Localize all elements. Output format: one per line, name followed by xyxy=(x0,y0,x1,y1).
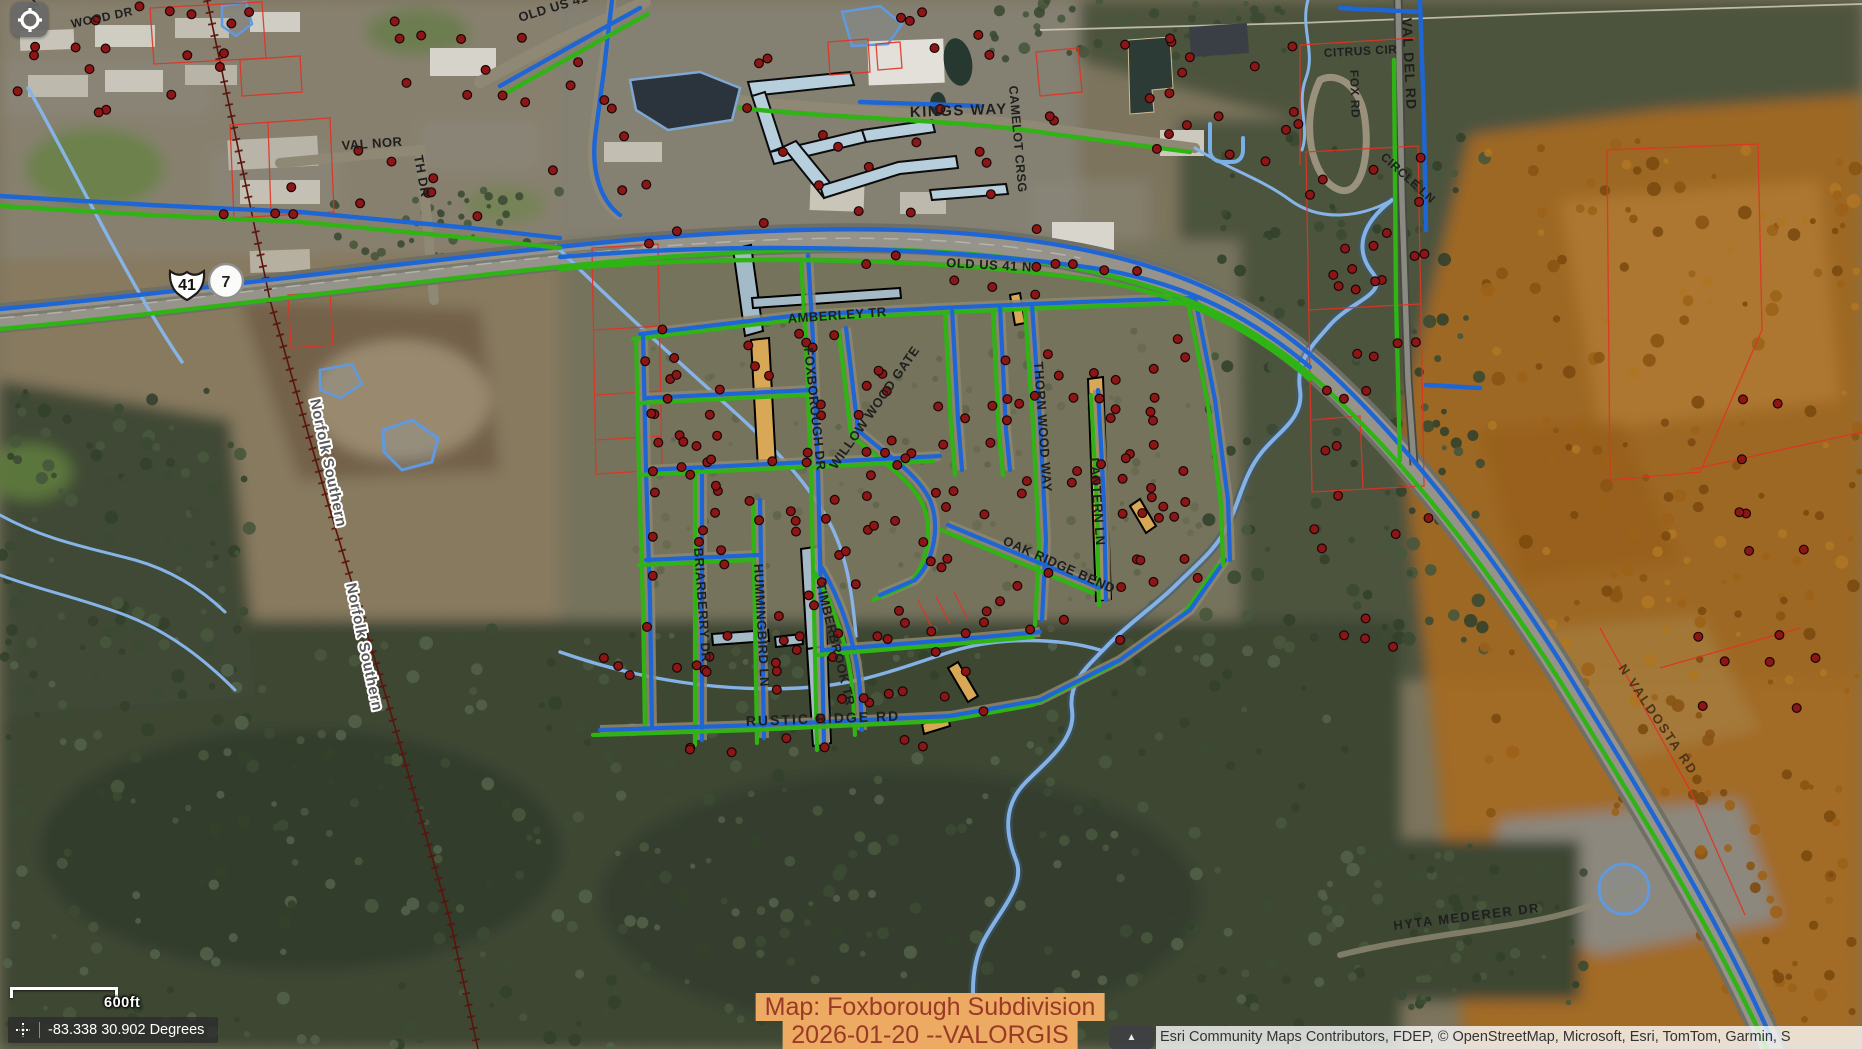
address-point-dot xyxy=(356,199,365,208)
attribution-toggle-button[interactable]: ▲ xyxy=(1109,1026,1154,1049)
address-point-dot xyxy=(859,694,868,703)
aerial-map[interactable]: KWWOOD DROLD US 41 NVAL NORTH DRKINGS WA… xyxy=(0,0,1862,1049)
address-point-dot xyxy=(135,2,144,11)
address-point-dot xyxy=(1116,636,1125,645)
address-point-dot xyxy=(686,470,695,479)
address-point-dot xyxy=(187,10,196,19)
address-point-dot xyxy=(1138,509,1147,518)
address-point-dot xyxy=(1146,407,1155,416)
address-point-dot xyxy=(94,108,103,117)
address-point-dot xyxy=(1100,266,1109,275)
address-point-dot xyxy=(919,742,928,751)
address-point-dot xyxy=(1069,260,1078,269)
address-point-dot xyxy=(654,438,663,447)
address-point-dot xyxy=(549,166,558,175)
address-point-dot xyxy=(614,662,623,671)
address-point-dot xyxy=(663,394,672,403)
address-point-dot xyxy=(768,457,777,466)
address-point-dot xyxy=(1118,474,1127,483)
address-point-dot xyxy=(521,98,530,107)
address-point-dot xyxy=(1694,632,1703,641)
address-point-dot xyxy=(607,104,616,113)
address-point-dot xyxy=(30,51,39,60)
address-point-dot xyxy=(1353,349,1362,358)
address-point-dot xyxy=(1044,350,1053,359)
address-point-dot xyxy=(245,8,254,17)
address-point-dot xyxy=(1159,502,1168,511)
address-point-dot xyxy=(1393,339,1402,348)
address-point-dot xyxy=(85,65,94,74)
address-point-dot xyxy=(1179,467,1188,476)
address-point-dot xyxy=(31,42,40,51)
address-point-dot xyxy=(891,517,900,526)
address-point-dot xyxy=(289,210,298,219)
address-point-dot xyxy=(1150,393,1159,402)
address-point-dot xyxy=(1775,631,1784,640)
address-point-dot xyxy=(71,43,80,52)
address-point-dot xyxy=(651,488,660,497)
address-point-dot xyxy=(1369,165,1378,174)
address-point-dot xyxy=(795,329,804,338)
address-point-dot xyxy=(982,158,991,167)
address-point-dot xyxy=(782,734,791,743)
scale-bar xyxy=(10,987,118,998)
address-point-dot xyxy=(1111,376,1120,385)
address-point-dot xyxy=(720,560,729,569)
address-point-dot xyxy=(1013,582,1022,591)
address-point-dot xyxy=(679,437,688,446)
address-point-dot xyxy=(518,33,527,42)
address-point-dot xyxy=(219,210,228,219)
address-point-dot xyxy=(1095,394,1104,403)
address-point-dot xyxy=(862,448,871,457)
address-point-dot xyxy=(702,668,711,677)
address-point-dot xyxy=(1069,393,1078,402)
address-point-dot xyxy=(1073,467,1082,476)
address-point-dot xyxy=(1323,386,1332,395)
address-point-dot xyxy=(1410,252,1419,261)
address-point-dot xyxy=(387,157,396,166)
address-point-dot xyxy=(1111,405,1120,414)
address-point-dot xyxy=(574,58,583,67)
address-point-dot xyxy=(1306,190,1315,199)
address-point-dot xyxy=(641,357,650,366)
address-point-dot xyxy=(649,467,658,476)
address-point-dot xyxy=(1318,544,1327,553)
address-point-dot xyxy=(918,8,927,17)
address-point-dot xyxy=(1067,478,1076,487)
address-point-dot xyxy=(906,208,915,217)
address-point-dot xyxy=(791,517,800,526)
address-point-dot xyxy=(930,44,939,53)
address-point-dot xyxy=(620,132,629,141)
collapse-arrow-icon: ▲ xyxy=(1127,1032,1137,1043)
address-point-dot xyxy=(1003,416,1012,425)
address-point-dot xyxy=(658,325,667,334)
address-point-dot xyxy=(940,692,949,701)
address-point-dot xyxy=(1329,271,1338,280)
address-point-dot xyxy=(772,685,781,694)
map-canvas[interactable]: KWWOOD DROLD US 41 NVAL NORTH DRKINGS WA… xyxy=(0,0,1862,1049)
address-point-dot xyxy=(699,526,708,535)
address-point-dot xyxy=(870,521,879,530)
address-point-dot xyxy=(905,17,914,26)
address-point-dot xyxy=(402,79,411,88)
address-point-dot xyxy=(919,538,928,547)
address-point-dot xyxy=(1340,394,1349,403)
address-point-dot xyxy=(390,17,399,26)
address-point-dot xyxy=(165,7,174,16)
address-point-dot xyxy=(1310,525,1319,534)
attribution-text: Esri Community Maps Contributors, FDEP, … xyxy=(1160,1029,1791,1045)
address-point-dot xyxy=(961,414,970,423)
address-point-dot xyxy=(1348,265,1357,274)
address-point-dot xyxy=(1181,353,1190,362)
address-point-dot xyxy=(898,687,907,696)
address-point-dot xyxy=(677,463,686,472)
address-point-dot xyxy=(950,276,959,285)
address-point-dot xyxy=(1334,491,1343,500)
map-street-label: FOX RD xyxy=(1347,70,1363,119)
address-point-dot xyxy=(1773,399,1782,408)
address-point-dot xyxy=(618,186,627,195)
address-point-dot xyxy=(1391,530,1400,539)
address-point-dot xyxy=(1149,364,1158,373)
address-point-dot xyxy=(1361,614,1370,623)
address-point-dot xyxy=(795,632,804,641)
address-point-dot xyxy=(1811,654,1820,663)
address-point-dot xyxy=(901,619,910,628)
address-point-dot xyxy=(937,563,946,572)
address-point-dot xyxy=(763,54,772,63)
address-point-dot xyxy=(1371,277,1380,286)
map-stamp-date: 2026-01-20 --VALORGIS xyxy=(782,1021,1077,1049)
address-point-dot xyxy=(887,436,896,445)
address-point-dot xyxy=(985,51,994,60)
address-point-dot xyxy=(830,331,839,340)
address-point-dot xyxy=(1738,455,1747,464)
address-point-dot xyxy=(786,507,795,516)
address-point-dot xyxy=(1178,68,1187,77)
address-point-dot xyxy=(1032,225,1041,234)
address-point-dot xyxy=(912,138,921,147)
address-point-dot xyxy=(1017,489,1026,498)
gis-app-window: KWWOOD DROLD US 41 NVAL NORTH DRKINGS WA… xyxy=(0,0,1862,1049)
address-point-dot xyxy=(1282,125,1291,134)
address-point-dot xyxy=(183,51,192,60)
address-point-dot xyxy=(1181,498,1190,507)
address-point-dot xyxy=(961,629,970,638)
address-point-dot xyxy=(779,148,788,157)
crosshair-icon xyxy=(15,1022,31,1038)
address-point-dot xyxy=(1090,369,1099,378)
address-point-dot xyxy=(600,96,609,105)
address-point-dot xyxy=(942,503,951,512)
address-point-dot xyxy=(772,658,781,667)
route7-shield-number: 7 xyxy=(222,274,231,291)
address-point-dot xyxy=(819,131,828,140)
address-point-dot xyxy=(1389,642,1398,651)
address-point-dot xyxy=(931,648,940,657)
address-point-dot xyxy=(1045,112,1054,121)
address-point-dot xyxy=(1745,547,1754,556)
address-point-dot xyxy=(927,627,936,636)
attribution-bar: Esri Community Maps Contributors, FDEP, … xyxy=(1156,1026,1862,1049)
address-point-dot xyxy=(1186,53,1195,62)
address-point-dot xyxy=(1118,509,1127,518)
address-point-dot xyxy=(715,385,724,394)
address-point-dot xyxy=(1340,631,1349,640)
address-point-dot xyxy=(1799,545,1808,554)
coords-separator xyxy=(39,1022,40,1038)
address-point-dot xyxy=(1225,150,1234,159)
scale-bar-label: 600ft xyxy=(104,995,140,1011)
address-point-dot xyxy=(1165,130,1174,139)
address-point-dot xyxy=(1147,493,1156,502)
locate-button[interactable] xyxy=(11,2,48,37)
address-point-dot xyxy=(1003,395,1012,404)
address-point-dot xyxy=(1288,42,1297,51)
address-point-dot xyxy=(867,471,876,480)
address-point-dot xyxy=(864,163,873,172)
address-point-dot xyxy=(779,636,788,645)
address-point-dot xyxy=(672,371,681,380)
address-point-dot xyxy=(820,743,829,752)
address-point-dot xyxy=(822,514,831,523)
address-point-dot xyxy=(692,442,701,451)
address-point-dot xyxy=(900,736,909,745)
address-point-dot xyxy=(755,516,764,525)
address-point-dot xyxy=(1044,569,1053,578)
address-point-dot xyxy=(1180,555,1189,564)
address-point-dot xyxy=(1173,335,1182,344)
address-point-dot xyxy=(775,612,784,621)
address-point-dot xyxy=(815,181,824,190)
address-point-dot xyxy=(670,354,679,363)
address-point-dot xyxy=(648,532,657,541)
address-point-dot xyxy=(982,607,991,616)
address-point-dot xyxy=(1351,285,1360,294)
address-point-dot xyxy=(717,546,726,555)
address-point-dot xyxy=(1149,578,1158,587)
address-point-dot xyxy=(1792,704,1801,713)
address-point-dot xyxy=(988,283,997,292)
coords-text: -83.338 30.902 Degrees xyxy=(48,1022,204,1038)
address-point-dot xyxy=(893,461,902,470)
address-point-dot xyxy=(457,35,466,44)
address-point-dot xyxy=(901,454,910,463)
address-point-dot xyxy=(1261,157,1270,166)
address-point-dot xyxy=(1149,416,1158,425)
address-point-dot xyxy=(830,495,839,504)
address-point-dot xyxy=(1051,260,1060,269)
address-point-dot xyxy=(1765,658,1774,667)
address-point-dot xyxy=(980,618,989,627)
address-point-dot xyxy=(943,554,952,563)
address-point-dot xyxy=(1250,62,1259,71)
address-point-dot xyxy=(1321,446,1330,455)
address-point-dot xyxy=(863,492,872,501)
address-point-dot xyxy=(759,219,768,228)
address-point-dot xyxy=(1735,508,1744,517)
address-point-dot xyxy=(744,341,753,350)
address-point-dot xyxy=(792,646,801,655)
address-point-dot xyxy=(1032,263,1041,272)
address-point-dot xyxy=(723,632,732,641)
address-point-dot xyxy=(897,13,906,22)
address-point-dot xyxy=(1023,477,1032,486)
address-point-dot xyxy=(712,481,721,490)
us41-shield-number: 41 xyxy=(178,277,196,294)
address-point-dot xyxy=(772,667,781,676)
address-point-dot xyxy=(873,632,882,641)
address-point-dot xyxy=(1341,244,1350,253)
address-point-dot xyxy=(705,410,714,419)
address-point-dot xyxy=(987,190,996,199)
address-point-dot xyxy=(1369,352,1378,361)
address-point-dot xyxy=(1031,290,1040,299)
address-point-dot xyxy=(926,557,935,566)
address-point-dot xyxy=(1117,583,1126,592)
address-point-dot xyxy=(980,510,989,519)
address-point-dot xyxy=(743,104,752,113)
address-point-dot xyxy=(1170,512,1179,521)
address-point-dot xyxy=(216,63,225,72)
address-point-dot xyxy=(1382,229,1391,238)
address-point-dot xyxy=(1416,153,1425,162)
address-point-dot xyxy=(707,455,716,464)
address-point-dot xyxy=(220,49,229,58)
address-point-dot xyxy=(1294,120,1303,129)
address-point-dot xyxy=(287,183,296,192)
address-point-dot xyxy=(673,227,682,236)
address-point-dot xyxy=(673,663,682,672)
address-point-dot xyxy=(600,654,609,663)
address-point-dot xyxy=(711,508,720,517)
address-point-dot xyxy=(986,438,995,447)
address-point-dot xyxy=(1121,40,1130,49)
address-point-dot xyxy=(974,31,983,40)
address-point-dot xyxy=(101,44,110,53)
address-point-dot xyxy=(1318,175,1327,184)
map-stamp-title: Map: Foxborough Subdivision xyxy=(756,993,1105,1021)
address-point-dot xyxy=(881,448,890,457)
address-point-dot xyxy=(647,409,656,418)
address-point-dot xyxy=(862,260,871,269)
address-point-dot xyxy=(1106,414,1115,423)
address-point-dot xyxy=(834,142,843,151)
locate-crosshair-icon xyxy=(17,7,43,33)
address-point-dot xyxy=(1121,454,1130,463)
address-point-dot xyxy=(727,748,736,757)
address-point-dot xyxy=(695,538,704,547)
address-point-dot xyxy=(932,488,941,497)
address-point-dot xyxy=(1015,399,1024,408)
address-point-dot xyxy=(1362,387,1371,396)
address-point-dot xyxy=(895,606,904,615)
address-point-dot xyxy=(810,601,819,610)
address-point-dot xyxy=(271,209,280,218)
address-point-dot xyxy=(745,497,754,506)
address-point-dot xyxy=(645,239,654,248)
address-point-dot xyxy=(1183,121,1192,130)
address-point-dot xyxy=(792,527,801,536)
address-point-dot xyxy=(1720,657,1729,666)
address-point-dot xyxy=(1214,112,1223,121)
address-point-dot xyxy=(1361,634,1370,643)
address-point-dot xyxy=(891,251,900,260)
address-point-dot xyxy=(1155,514,1164,523)
address-point-dot xyxy=(498,91,507,100)
route7-circle-shield: 7 xyxy=(209,264,243,298)
address-point-dot xyxy=(473,212,482,221)
address-point-dot xyxy=(1420,250,1429,259)
address-point-dot xyxy=(1153,145,1162,154)
address-point-dot xyxy=(979,707,988,716)
address-point-dot xyxy=(1193,574,1202,583)
address-point-dot xyxy=(841,547,850,556)
address-point-dot xyxy=(765,371,774,380)
address-point-dot xyxy=(463,91,472,100)
address-point-dot xyxy=(1001,356,1010,365)
address-point-dot xyxy=(1412,338,1421,347)
address-point-dot xyxy=(934,402,943,411)
address-point-dot xyxy=(755,59,764,68)
address-point-dot xyxy=(961,667,970,676)
address-point-dot xyxy=(643,623,652,632)
address-point-dot xyxy=(884,689,893,698)
address-point-dot xyxy=(988,401,997,410)
address-point-dot xyxy=(874,366,883,375)
address-point-dot xyxy=(1145,94,1154,103)
map-street-label: KINGS WAY xyxy=(910,101,1009,121)
address-point-dot xyxy=(481,66,490,75)
address-point-dot xyxy=(1147,484,1156,493)
address-point-dot xyxy=(13,87,22,96)
address-point-dot xyxy=(1698,702,1707,711)
address-point-dot xyxy=(1332,442,1341,451)
address-point-dot xyxy=(1133,267,1142,276)
address-point-dot xyxy=(1334,282,1343,291)
address-point-dot xyxy=(417,31,426,40)
address-point-dot xyxy=(1165,89,1174,98)
address-point-dot xyxy=(1166,34,1175,43)
address-point-dot xyxy=(566,81,575,90)
address-point-dot xyxy=(648,571,657,580)
address-point-dot xyxy=(996,597,1005,606)
address-point-dot xyxy=(686,745,695,754)
address-point-dot xyxy=(1136,556,1145,565)
address-point-dot xyxy=(713,431,722,440)
address-point-dot xyxy=(1026,625,1035,634)
address-point-dot xyxy=(227,19,236,28)
address-point-dot xyxy=(1739,395,1748,404)
address-point-dot xyxy=(1060,615,1069,624)
address-point-dot xyxy=(883,635,892,644)
map-stamp: Map: Foxborough Subdivision 2026-01-20 -… xyxy=(756,993,1105,1049)
address-point-dot xyxy=(939,440,948,449)
address-point-dot xyxy=(1424,514,1433,523)
address-point-dot xyxy=(949,487,958,496)
address-point-dot xyxy=(802,458,811,467)
address-point-dot xyxy=(1054,371,1063,380)
address-point-dot xyxy=(803,448,812,457)
address-point-dot xyxy=(625,671,634,680)
address-point-dot xyxy=(1369,241,1378,250)
address-point-dot xyxy=(751,362,760,371)
address-point-dot xyxy=(642,180,651,189)
coordinate-readout: -83.338 30.902 Degrees xyxy=(8,1017,218,1043)
